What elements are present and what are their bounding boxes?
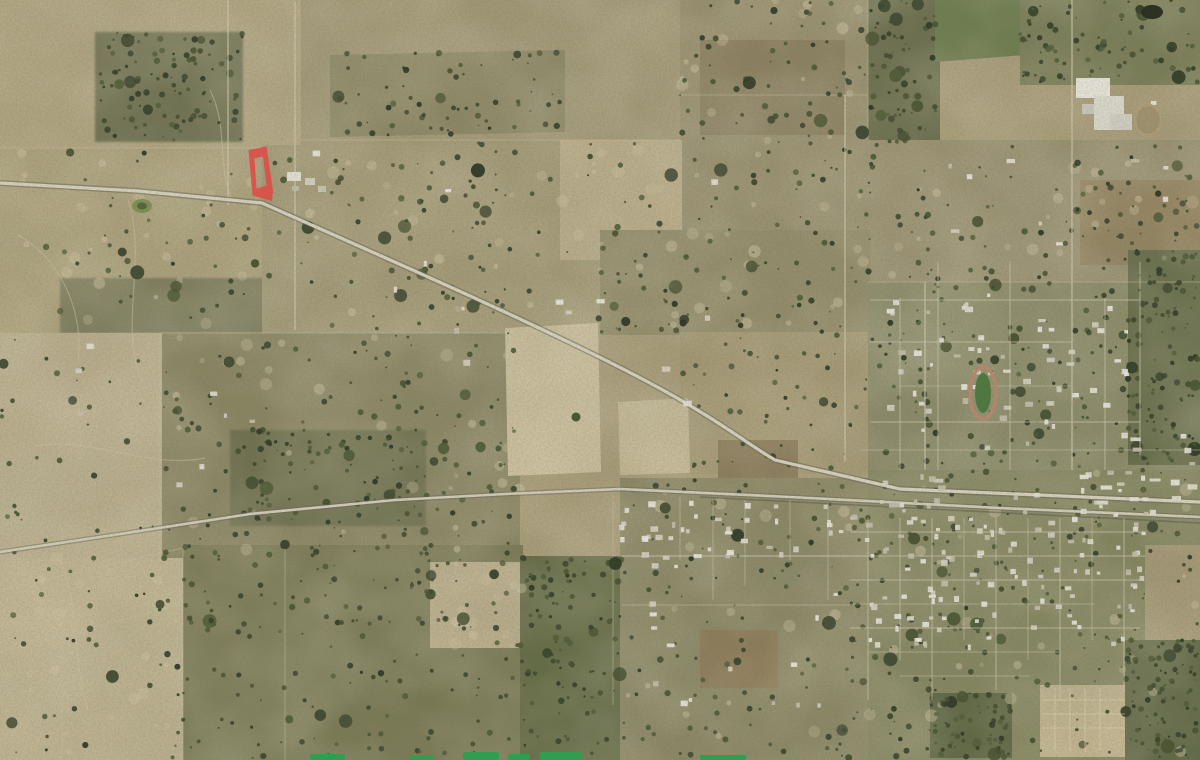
satellite-map[interactable] xyxy=(0,0,1200,760)
image-grain xyxy=(0,0,1200,760)
